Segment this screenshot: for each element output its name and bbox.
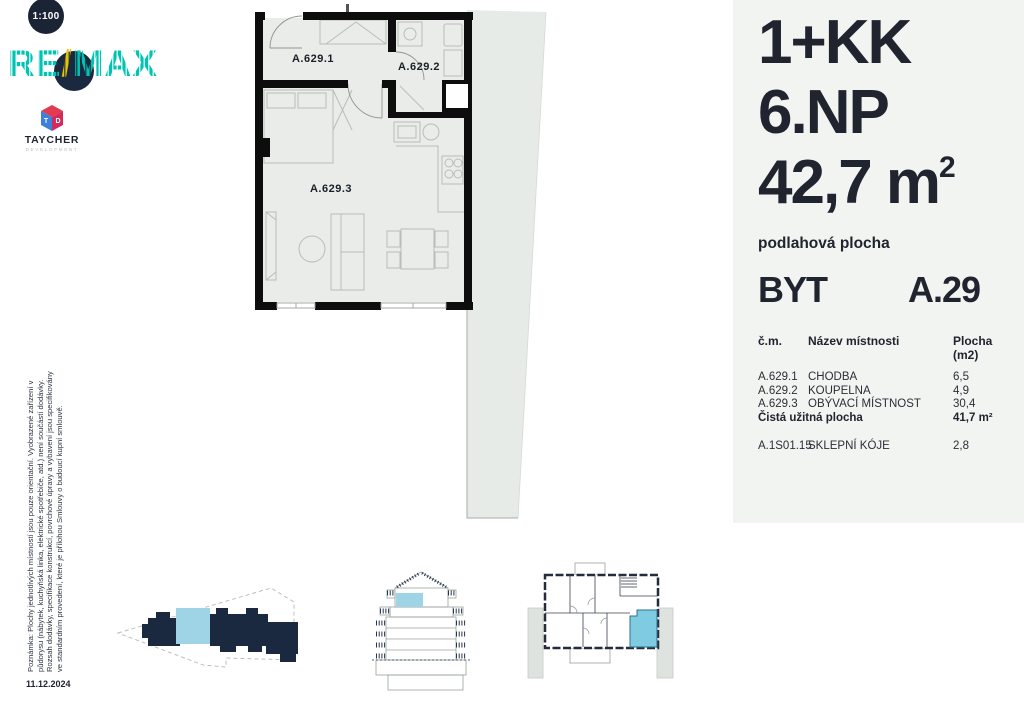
remax-max: MAX [73,43,158,84]
layout-heading: 1+KK [758,8,1024,78]
table-row: A.629.3 OBÝVACÍ MÍSTNOST 30,4 [758,398,1000,412]
room-label-hallway: A.629.1 [292,53,334,65]
remax-letters: RE/MAX [8,44,158,84]
terrace-strip [467,10,546,518]
unit-id: A.29 [908,269,980,311]
taycher-name: TAYCHER [12,134,92,146]
elevation-highlight [396,593,423,607]
unit-row: BYT A.29 [758,269,980,311]
table-header: č.m. Název místnosti Plocha (m2) [758,335,1000,362]
room-label-living: A.629.3 [310,183,352,195]
site-plan-thumbnail [108,560,308,700]
room-label-bathroom: A.629.2 [398,61,440,73]
svg-text:D: D [55,118,60,125]
area-caption: podlahová plocha [758,235,1024,253]
scale-badge-label: 1:100 [32,11,59,22]
remax-slash-icon: / [61,43,72,84]
area-superscript: 2 [939,151,956,184]
table-row: A.629.1 CHODBA 6,5 [758,371,1000,385]
floor-key-highlight [630,610,657,647]
floor-heading: 6.NP [758,78,1024,148]
taycher-subtitle: DEVELOPMENT [12,147,92,152]
svg-text:T: T [44,118,49,125]
site-building [142,608,298,662]
total-row: Čistá užitná plocha 41,7 m² [758,412,1000,426]
elevation-thumbnail [358,560,483,695]
side-note: Poznámka: Plochy jednotlivých místností … [26,350,65,672]
taycher-cube-icon: T D [39,104,65,132]
cellar-row: A.1S01.15 SKLEPNÍ KÓJE 2,8 [758,440,1000,454]
area-heading: 42,7 m2 [758,148,1024,229]
shaft [446,84,468,108]
info-panel: 1+KK 6.NP 42,7 m2 podlahová plocha BYT A… [733,0,1024,523]
rooms-table: č.m. Název místnosti Plocha (m2) A.629.1… [758,335,1000,454]
table-row: A.629.2 KOUPELNA 4,9 [758,385,1000,399]
unit-type: BYT [758,269,827,311]
remax-re: RE [8,43,61,84]
taycher-logo: T D TAYCHER DEVELOPMENT [12,104,92,152]
floor-plan: A.629.1 A.629.2 A.629.3 [250,0,550,560]
floor-key-thumbnail [525,558,675,703]
site-highlight [176,608,210,644]
remax-logo: RE/MAX [8,44,178,88]
scale-badge: 1:100 [28,0,64,34]
note-date: 11.12.2024 [26,679,71,689]
